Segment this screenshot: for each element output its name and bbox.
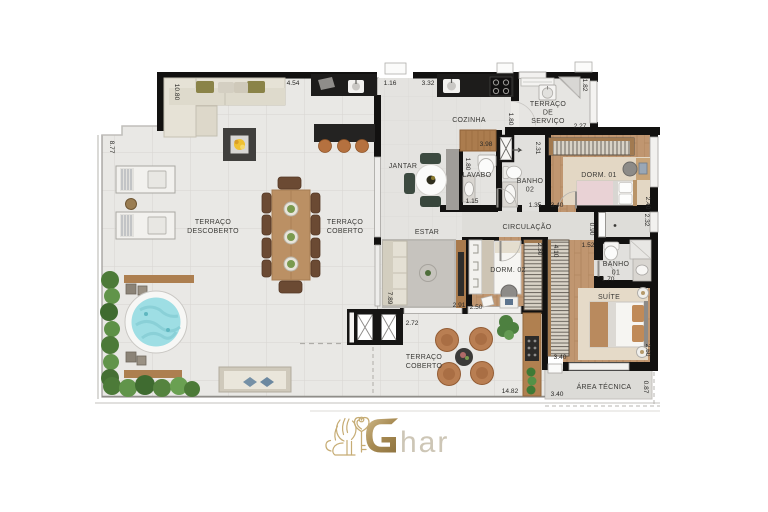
svg-text:1.80: 1.80 <box>464 158 471 171</box>
svg-text:1.82: 1.82 <box>581 79 588 92</box>
svg-text:DE: DE <box>543 110 553 117</box>
svg-text:1.35: 1.35 <box>529 202 542 209</box>
svg-text:BANHO: BANHO <box>603 261 630 268</box>
svg-text:8.77: 8.77 <box>108 141 115 154</box>
svg-text:DORM. 01: DORM. 01 <box>581 172 616 179</box>
svg-text:CIRCULAÇÃO: CIRCULAÇÃO <box>503 222 552 231</box>
svg-text:2.50: 2.50 <box>470 304 483 311</box>
svg-text:TERRAÇO: TERRAÇO <box>195 219 232 226</box>
svg-text:COBERTO: COBERTO <box>406 363 443 370</box>
svg-text:2.30: 2.30 <box>536 243 543 256</box>
svg-text:0.87: 0.87 <box>642 381 649 394</box>
svg-text:TERRAÇO: TERRAÇO <box>406 354 443 361</box>
svg-text:TERRAÇO: TERRAÇO <box>530 101 567 108</box>
svg-text:3.32: 3.32 <box>422 80 435 87</box>
svg-text:10.80: 10.80 <box>173 84 180 101</box>
svg-text:2.32: 2.32 <box>643 214 650 227</box>
svg-text:02: 02 <box>526 187 534 194</box>
svg-text:2.27: 2.27 <box>574 123 587 130</box>
svg-text:2.31: 2.31 <box>534 142 541 155</box>
svg-text:1.52: 1.52 <box>582 242 595 249</box>
svg-text:1.16: 1.16 <box>384 80 397 87</box>
svg-text:0.90: 0.90 <box>588 223 595 236</box>
svg-text:COZINHA: COZINHA <box>452 117 486 124</box>
svg-text:DESCOBERTO: DESCOBERTO <box>187 228 239 235</box>
svg-text:3.40: 3.40 <box>551 202 564 209</box>
svg-text:DORM. 02: DORM. 02 <box>490 267 525 274</box>
svg-text:1.70: 1.70 <box>602 276 615 283</box>
svg-text:14.82: 14.82 <box>502 388 519 395</box>
svg-text:LAVABO: LAVABO <box>463 172 492 179</box>
svg-text:2.72: 2.72 <box>406 320 419 327</box>
svg-text:3.98: 3.98 <box>480 141 493 148</box>
svg-text:4.54: 4.54 <box>287 80 300 87</box>
svg-text:1.80: 1.80 <box>507 113 514 126</box>
svg-text:JANTAR: JANTAR <box>389 163 418 170</box>
svg-text:7.89: 7.89 <box>386 292 393 305</box>
svg-text:TERRAÇO: TERRAÇO <box>327 219 364 226</box>
svg-text:2.60: 2.60 <box>644 344 651 357</box>
svg-text:BANHO: BANHO <box>517 178 544 185</box>
svg-text:3.40: 3.40 <box>554 354 567 361</box>
svg-text:2.91: 2.91 <box>453 302 466 309</box>
svg-text:ÁREA TÉCNICA: ÁREA TÉCNICA <box>577 382 632 391</box>
svg-text:1.15: 1.15 <box>466 198 479 205</box>
svg-text:har: har <box>400 426 449 459</box>
svg-text:3.40: 3.40 <box>551 391 564 398</box>
svg-text:4.10: 4.10 <box>552 245 559 258</box>
svg-text:SERVIÇO: SERVIÇO <box>531 118 565 125</box>
svg-text:ESTAR: ESTAR <box>415 229 439 236</box>
svg-text:2.40: 2.40 <box>644 197 651 210</box>
svg-text:COBERTO: COBERTO <box>327 228 364 235</box>
svg-text:SUÍTE: SUÍTE <box>598 292 620 301</box>
